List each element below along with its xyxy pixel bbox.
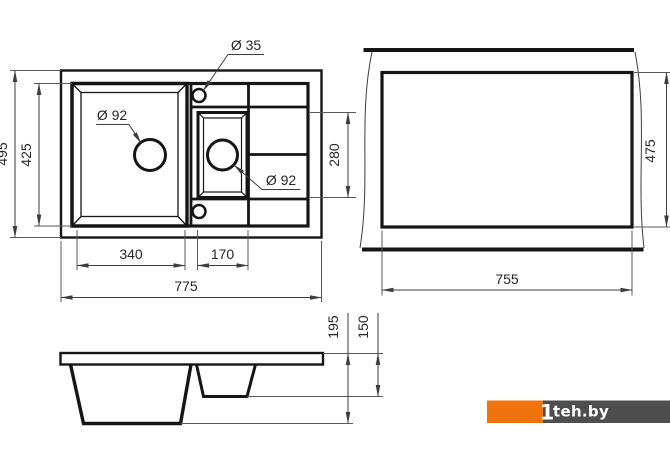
dim-small-bowl-depth: 150 [355,313,378,397]
dim-340-label: 340 [119,246,143,262]
break-line-left [360,52,372,248]
dim-small-bowl-length: 280 [310,113,356,198]
cutout-view: 475 755 [360,50,670,296]
faucet-hole-bottom [193,205,206,218]
side-view: 195 150 [61,313,384,424]
sink-technical-drawing: Ø 35 Ø 92 Ø 92 495 425 [0,0,670,471]
faucet-diameter-label: Ø 35 [231,37,262,53]
dim-main-bowl-depth: 195 [325,313,348,424]
dim-475-label: 475 [642,139,658,163]
dim-total-width: 775 [61,241,322,302]
dim-495-label: 495 [0,142,10,166]
dim-755-label: 755 [495,271,519,287]
dim-150-label: 150 [355,315,371,339]
small-drain-hole [208,140,238,170]
callout-small-drain-diameter: Ø 92 [234,165,300,190]
dim-main-bowl-width: 340 [77,230,185,270]
dim-170-label: 170 [211,246,235,262]
dim-775-label: 775 [174,278,198,294]
dim-bowl-depth: 425 [18,84,72,227]
top-view: Ø 35 Ø 92 Ø 92 495 425 [0,37,356,302]
dim-280-label: 280 [326,143,342,167]
logo-orange-block [487,401,543,424]
small-bowl-profile [197,365,256,397]
dim-195-label: 195 [325,315,341,339]
dim-425-label: 425 [18,143,34,167]
main-drain-diameter-label: Ø 92 [97,107,128,123]
dim-small-bowl-width: 170 [198,230,249,270]
small-bowl [198,113,247,198]
callout-main-drain-diameter: Ø 92 [96,107,141,143]
small-drain-diameter-label: Ø 92 [266,172,297,188]
logo-site-name: teh.by [553,403,609,421]
sink-flange-profile [61,353,324,365]
dim-cutout-depth: 475 [634,73,670,228]
main-bowl-profile [71,365,192,424]
site-watermark-logo: 1 teh.by [487,401,670,425]
dim-cutout-width: 755 [382,231,632,296]
main-drain-hole [135,140,166,171]
cutout-rect [382,73,632,228]
technical-drawing-page: Ø 35 Ø 92 Ø 92 495 425 [0,0,670,471]
main-bowl [72,84,187,227]
